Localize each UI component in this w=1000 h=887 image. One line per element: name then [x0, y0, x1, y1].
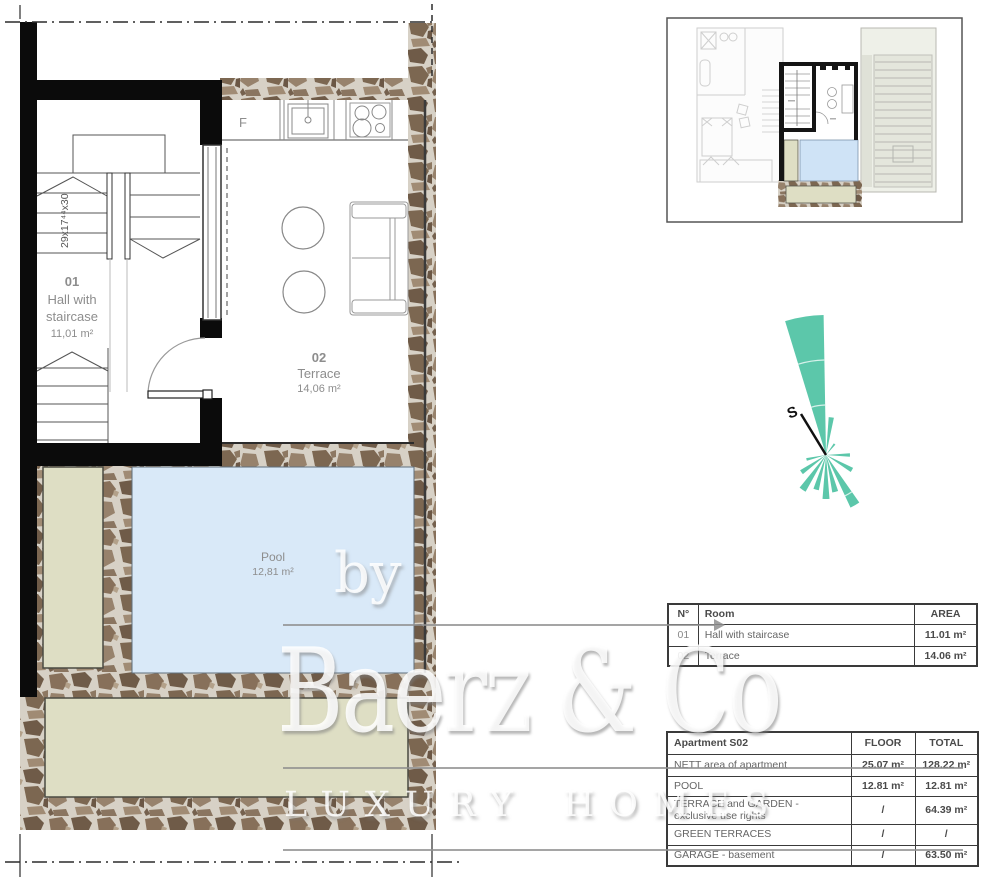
col-header-floor: FLOOR: [851, 732, 915, 754]
room01-id: 01: [65, 274, 79, 289]
room-area-table: N° Room AREA 01 Hall with staircase 11.0…: [667, 603, 978, 667]
room-name: Hall with staircase: [698, 624, 914, 646]
summary-total: /: [915, 824, 978, 845]
stove-icon: [350, 103, 390, 137]
fridge-label: F: [239, 115, 247, 130]
room01-area: 11,01 m²: [51, 328, 94, 340]
summary-label: GREEN TERRACES: [667, 824, 851, 845]
summary-total: 128.22 m²: [915, 754, 978, 776]
terrace-furniture: [282, 202, 408, 315]
main-floor-plan: F 01 Hall with staircase 11,01 m² 02 Ter…: [5, 4, 460, 877]
table-header-row: Apartment S02 FLOOR TOTAL: [667, 732, 978, 754]
summary-total: 12.81 m²: [915, 776, 978, 796]
summary-title: Apartment S02: [667, 732, 851, 754]
floorplan-sheet: F 01 Hall with staircase 11,01 m² 02 Ter…: [0, 0, 1000, 887]
room-no: 01: [668, 624, 698, 646]
col-header-area: AREA: [915, 604, 977, 624]
summary-total: 64.39 m²: [915, 796, 978, 824]
col-header-no: N°: [668, 604, 698, 624]
overview-plan: [667, 18, 962, 222]
pool-area: 12,81 m²: [252, 566, 294, 578]
summary-floor: 25.07 m²: [851, 754, 915, 776]
room02-id: 02: [312, 350, 326, 365]
watermark-divider: [283, 849, 963, 851]
staircase-lower: [37, 348, 108, 443]
summary-label: TERRACE and GARDEN - exclusive use right…: [667, 796, 851, 824]
table-row: GREEN TERRACES / /: [667, 824, 978, 845]
summary-floor: 12.81 m²: [851, 776, 915, 796]
wind-rose: S: [785, 315, 859, 508]
door: [148, 338, 212, 399]
table-row: NETT area of apartment 25.07 m² 128.22 m…: [667, 754, 978, 776]
table-row: TERRACE and GARDEN - exclusive use right…: [667, 796, 978, 824]
col-header-total: TOTAL: [915, 732, 978, 754]
staircase: [37, 135, 200, 392]
round-table: [282, 207, 324, 249]
room02-name: Terrace: [297, 366, 340, 381]
summary-floor: /: [851, 796, 915, 824]
stair-dimension-note: 29x17⁴⁴x30: [59, 193, 71, 248]
watermark-divider: [283, 624, 715, 626]
summary-floor: /: [851, 824, 915, 845]
room-area: 14.06 m²: [915, 646, 977, 666]
sink-icon: [288, 100, 328, 138]
pool-name: Pool: [261, 550, 285, 564]
room-name: Terrace: [698, 646, 914, 666]
summary-label: POOL: [667, 776, 851, 796]
room02-area: 14,06 m²: [297, 383, 341, 395]
green-terrace-south: [45, 698, 408, 797]
sofa: [350, 202, 408, 315]
round-table: [283, 271, 325, 313]
kitchen-counter: [222, 100, 408, 140]
summary-label: NETT area of apartment: [667, 754, 851, 776]
room-area: 11.01 m²: [915, 624, 977, 646]
table-row: 02 Terrace 14.06 m²: [668, 646, 977, 666]
room01-name-2: staircase: [46, 309, 98, 324]
col-header-room: Room: [698, 604, 914, 624]
compass-south-label: S: [785, 403, 800, 422]
table-row: POOL 12.81 m² 12.81 m²: [667, 776, 978, 796]
window: [203, 145, 227, 320]
wind-rose-petal: [826, 453, 850, 456]
apartment-summary-table: Apartment S02 FLOOR TOTAL NETT area of a…: [666, 731, 979, 867]
room-no: 02: [668, 646, 698, 666]
room01-name-1: Hall with: [47, 292, 96, 307]
overview-pergola: [861, 28, 936, 192]
arrow-right-icon: [714, 619, 725, 631]
overview-faded-building: [697, 28, 783, 182]
wind-rose-petal: [785, 315, 826, 455]
green-strip-west: [43, 467, 103, 668]
watermark-divider: [283, 767, 963, 769]
overview-highlighted-unit: [778, 62, 862, 207]
